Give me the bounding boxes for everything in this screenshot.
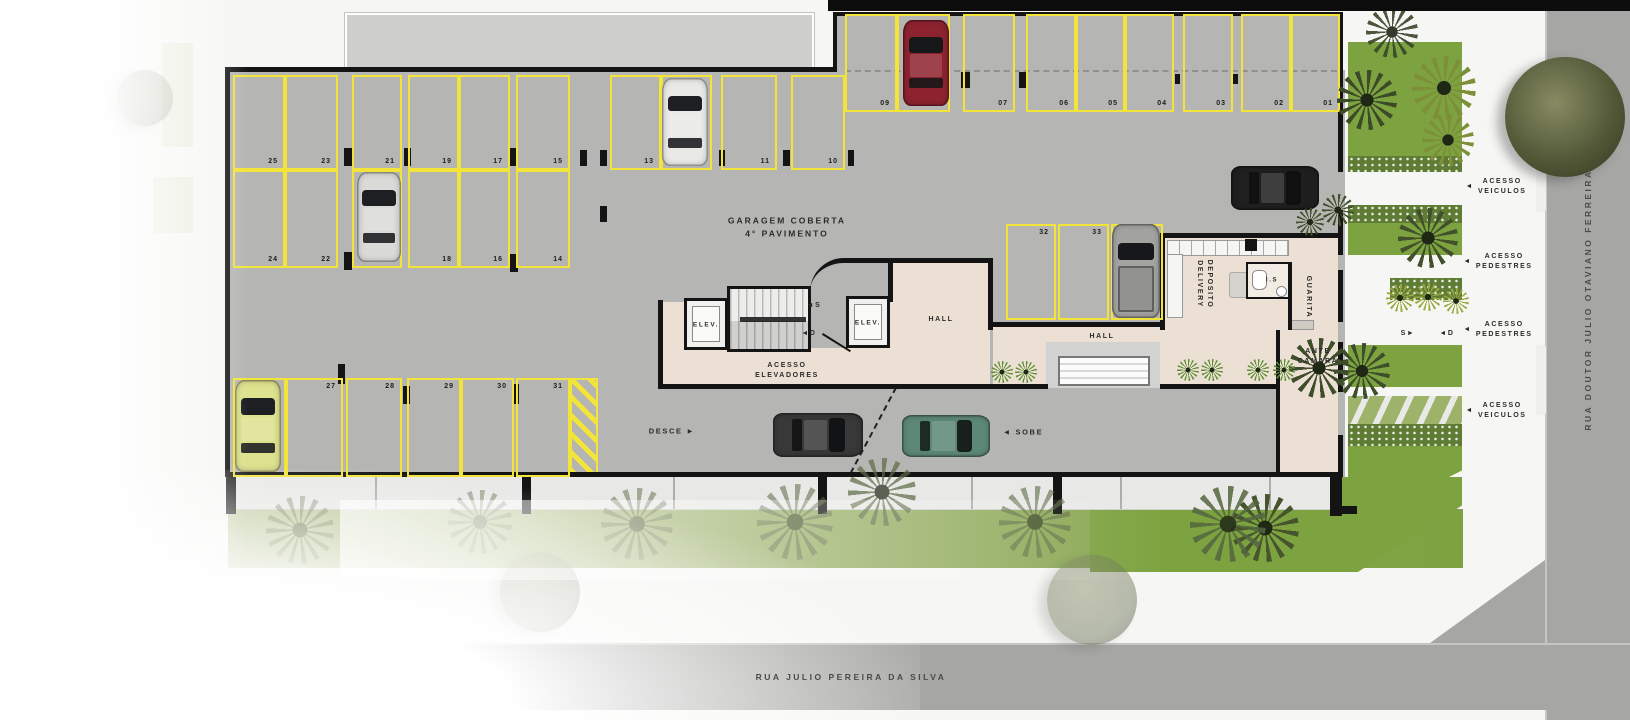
sobe-label: ◄ SOBE	[1003, 428, 1043, 439]
garage-title: GARAGEM COBERTA 4° PAVIMENTO	[728, 214, 846, 240]
street-right-name: RUA DOUTOR JULIO OTAVIANO FERREIRA	[1583, 169, 1593, 430]
garage-title-line2: 4° PAVIMENTO	[728, 227, 846, 240]
acesso-pedestres-2-label: ◄ACESSOPEDESTRES	[1463, 320, 1532, 340]
ante-camara-label: ANTECAMARA	[1298, 347, 1339, 367]
acesso-veiculos-top-label-text: ACESSOVEICULOS	[1478, 177, 1527, 197]
elev-left-label: ELEV.	[693, 320, 719, 329]
fog-left	[0, 0, 270, 720]
arrow-icon: ◄	[1463, 325, 1472, 335]
arrow-icon: ◄	[1465, 406, 1474, 416]
acesso-veiculos-top-label: ◄ACESSOVEICULOS	[1465, 177, 1526, 197]
floor-plan: 2523211917151312111024222018161426272829…	[0, 0, 1630, 720]
stair-down-marker: ◄D	[801, 329, 816, 339]
desce-label: DESCE ►	[649, 427, 696, 438]
acesso-pedestres-2-label-text: ACESSOPEDESTRES	[1476, 320, 1533, 340]
is-label: I.S	[1266, 277, 1278, 286]
acesso-pedestres-1-label: ◄ACESSOPEDESTRES	[1463, 252, 1532, 272]
deposito-delivery-label: DEPOSITODELIVERY	[1194, 260, 1214, 309]
elev-right-label: ELEV.	[855, 318, 881, 327]
acesso-pedestres-1-label-text: ACESSOPEDESTRES	[1476, 252, 1533, 272]
s-walk-marker: S►	[1401, 329, 1416, 339]
guarita-label: GUARITA	[1303, 276, 1313, 319]
acesso-veiculos-bottom-label: ◄ACESSOVEICULOS	[1465, 401, 1526, 421]
arrow-icon: ◄	[1465, 182, 1474, 192]
hall-label-2: HALL	[1089, 332, 1114, 342]
acesso-elevadores-label: ACESSOELEVADORES	[755, 361, 819, 381]
stair-up-marker: ◄S	[807, 301, 822, 311]
street-bottom-name: RUA JULIO PEREIRA DA SILVA	[756, 672, 947, 682]
acesso-veiculos-bottom-label-text: ACESSOVEICULOS	[1478, 401, 1527, 421]
garage-title-line1: GARAGEM COBERTA	[728, 214, 846, 227]
arrow-icon: ◄	[1463, 257, 1472, 267]
hall-label-1: HALL	[928, 315, 953, 325]
d-walk-marker: ◄D	[1439, 329, 1454, 339]
